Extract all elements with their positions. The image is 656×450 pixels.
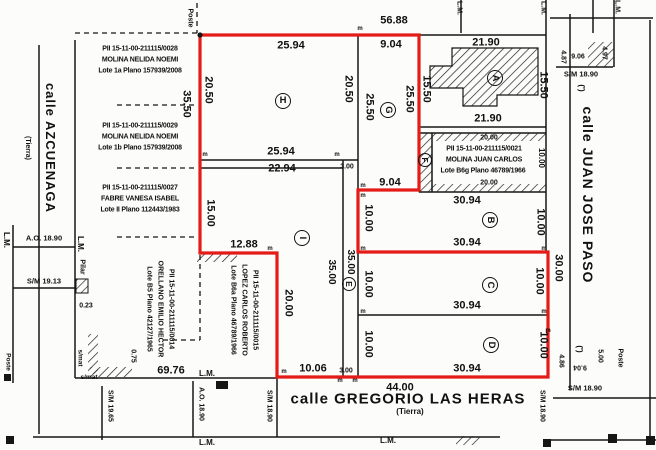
dim-h-bottom: 25.94	[267, 147, 295, 158]
dim-pilar-offset: 0.23	[79, 303, 93, 310]
dim-g-bottom: 9.04	[379, 178, 400, 189]
m-mark: m	[360, 246, 365, 252]
m-mark: m	[360, 193, 365, 199]
parcel-i-letter: I	[294, 230, 310, 246]
dim-paso-side-sm: S/M 18.90	[539, 390, 546, 422]
dim-paso-top-sm: S/M 18.90	[564, 70, 598, 78]
parcel-h-letter: H	[275, 93, 291, 109]
dim-e-depth: 35.00	[345, 249, 355, 274]
dim-g-right: 25.50	[404, 85, 415, 113]
dim-a-left: 15.50	[421, 75, 432, 103]
street-azcuenaga-name: calle AZCUENAGA	[43, 83, 58, 213]
parcel-b-letter: B	[482, 212, 498, 228]
dim-d-bottom: 30.94	[453, 364, 481, 375]
poste-corner-point	[197, 32, 202, 37]
parcel-c-letter: C	[482, 277, 498, 293]
m-mark: m	[545, 328, 550, 334]
dim-a-bottom: 21.90	[474, 114, 502, 125]
lot-b5-owner: ORELLANO EMILIO HECTOR	[156, 261, 163, 358]
m-mark: m	[541, 246, 546, 252]
street-azcuenaga: calle AZCUENAGA (Tierra)	[20, 83, 60, 213]
tick-run-1	[197, 254, 237, 262]
lm-label-2: L.M.	[540, 1, 547, 15]
lot-ii-owner: FABRE VANESA ISABEL	[101, 196, 179, 203]
dim-i-bottom: 10.06	[299, 364, 327, 375]
lot-1a-lote: Lote 1a Plano 157939/2008	[98, 68, 181, 75]
dim-block-south-side: 69.76	[157, 366, 185, 377]
tick-run-4	[456, 436, 480, 445]
parcel-d-letter: D	[483, 337, 499, 353]
dim-paso-top-b: 9.06	[571, 54, 585, 61]
lot-1b-lote: Lote 1b Plano 157939/2008	[98, 145, 182, 152]
dim-paso-bottom-sm: S/M 18.90	[568, 384, 602, 392]
dim-heras-sm-west: S/M 19.65	[107, 390, 114, 422]
dim-i-depth: 35.00	[326, 259, 336, 284]
lm-label-8: L.M.	[380, 437, 396, 445]
dim-b-left: 10.00	[363, 204, 374, 232]
dim-h-right: 20.50	[343, 75, 354, 103]
m-mark: m	[360, 183, 365, 189]
dim-i-step: 12.88	[230, 240, 258, 251]
prime-mark-top: (')	[577, 84, 585, 91]
lot-b6a-pii: PII 15-11-00-211115/0015	[251, 270, 258, 350]
dim-paso-bottom-a: 4.86	[558, 354, 565, 368]
dim-b-right: 10.00	[535, 208, 546, 236]
parcel-a-letter: A	[487, 70, 503, 86]
lot-ii-lote: Lote II Plano 112443/1983	[100, 207, 179, 214]
street-gregorio-las-heras: calle GREGORIO LAS HERAS	[291, 392, 526, 407]
dim-i-left-lower: 20.00	[283, 289, 294, 317]
m-mark: m	[337, 378, 342, 384]
dim-b6g-bottom: 20.00	[480, 180, 498, 187]
prime-mark-bottom: (')	[575, 345, 583, 352]
m-mark: m	[352, 378, 357, 384]
dim-d-left: 10.00	[363, 330, 374, 358]
poste-label-left: Poste	[4, 353, 11, 371]
lot-1a-pii: PII 15-11-00-211115/0028	[102, 46, 177, 53]
dim-azcuenaga-sm: S/M 19.13	[27, 277, 61, 285]
survey-plan: calle AZCUENAGA (Tierra) calle JUAN JOSE…	[0, 0, 656, 450]
lot-b6g-lote: Lote B6g Plano 46789/1966	[441, 168, 526, 175]
dim-h-left: 20.50	[203, 76, 214, 104]
lot-1a-owner: MOLINA NELIDA NOEMI	[102, 57, 178, 64]
lot-b6a-text: PII 15-11-00-211115/0015 LOPEZ CARLOS RO…	[227, 264, 260, 356]
building-footprint-a	[430, 48, 538, 106]
parcel-e-letter: E	[342, 277, 356, 291]
lot-b6g-pii: PII 15-11-00-211115/0021	[446, 146, 521, 153]
dim-e-bottom: 3.00	[339, 368, 353, 375]
m-mark: m	[267, 246, 272, 252]
pilar-mark	[76, 279, 88, 293]
dim-bottom-total: 44.00	[386, 383, 414, 394]
m-mark: m	[202, 152, 207, 158]
street-azcuenaga-type: (Tierra)	[24, 136, 31, 160]
dim-bcd-right-total: 30.00	[553, 254, 564, 282]
pilar-label: Pilar	[79, 259, 86, 274]
m-mark: m	[360, 309, 365, 315]
lot-b6a-owner: LOPEZ CARLOS ROBERTO	[240, 264, 247, 356]
dim-i-left: 15.00	[205, 199, 216, 227]
parcel-f-letter: F	[418, 153, 432, 167]
dim-top-total: 56.88	[380, 16, 408, 27]
dim-c-right: 10.00	[534, 267, 545, 295]
dim-g-left: 25.50	[364, 93, 375, 121]
lm-label-1: L.M.	[456, 1, 463, 15]
dim-c-left: 10.00	[363, 270, 374, 298]
lot-1b-pii: PII 15-11-00-211115/0029	[102, 123, 177, 130]
lot-1b-owner: MOLINA NELIDA NOEMI	[102, 134, 178, 141]
smat-label-2: s/mat	[81, 375, 98, 382]
lm-label-6: L.M.	[199, 370, 215, 378]
dim-b6g-top: 20.00	[480, 135, 498, 142]
m-mark: m	[541, 309, 546, 315]
dim-g-top: 9.04	[380, 40, 401, 51]
dim-a-right: 15.50	[538, 71, 549, 99]
dim-d-right: 10.00	[538, 331, 549, 359]
poste-label-right: Poste	[617, 348, 624, 367]
lot-b5-lote: Lote B5 Plano 42127/1965	[146, 266, 153, 352]
lot-b6g-owner: MOLINA JUAN CARLOS	[446, 157, 522, 164]
dim-paso-top-a: 4.87	[560, 50, 567, 64]
lot-ii-pii: PII 15-11-00-211115/0027	[102, 185, 177, 192]
dim-b6g-right: 10.00	[537, 148, 545, 168]
dim-b-top: 30.94	[453, 196, 481, 207]
m-mark: m	[357, 26, 362, 32]
dim-i-top: 22.94	[268, 164, 296, 175]
lm-label-3: L.M.	[614, 0, 621, 14]
dim-azcuenaga-ao: A.O. 18.90	[26, 234, 62, 242]
dim-b-bottom: 30.94	[453, 238, 481, 249]
poste-label-top: Poste	[187, 8, 194, 27]
dim-heras-ao: A.O. 18.90	[198, 387, 205, 421]
dim-heras-sm-east: S/M 18.90	[266, 390, 273, 422]
dim-lots-left-depth: 35.50	[181, 90, 192, 118]
dashed-lines	[75, 3, 200, 340]
lot-b6a-lote: Lote B6a Plano 46789/1966	[230, 265, 237, 355]
street-juan-jose-paso: calle JUAN JOSE PASO	[581, 107, 595, 284]
lot-b5-pii: PII 15-11-00-211115/0014	[167, 269, 174, 349]
m-mark: m	[281, 369, 286, 375]
lm-label-5: L.M.	[76, 236, 84, 252]
dim-paso-bottom-c: 5.00	[597, 349, 604, 363]
dim-paso-bottom-b: 9.04	[573, 364, 587, 371]
dim-h-top: 25.94	[277, 41, 305, 52]
parcel-g-letter: G	[380, 102, 396, 118]
dim-e-top: 3.00	[340, 164, 354, 171]
lm-label-7: L.M.	[199, 439, 215, 447]
dim-wall-offset: 0.75	[130, 349, 137, 363]
dim-a-top: 21.90	[472, 38, 500, 49]
street-gregorio-type: (Tierra)	[396, 408, 423, 416]
dim-paso-top-c: 4.97	[601, 46, 608, 60]
m-mark: m	[334, 152, 339, 158]
lm-label-4: L.M.	[2, 232, 10, 248]
lot-b5-text: PII 15-11-00-211115/0014 ORELLANO EMILIO…	[143, 261, 176, 358]
smat-label-1: s/mat	[76, 350, 83, 367]
dim-c-bottom: 30.94	[453, 301, 481, 312]
